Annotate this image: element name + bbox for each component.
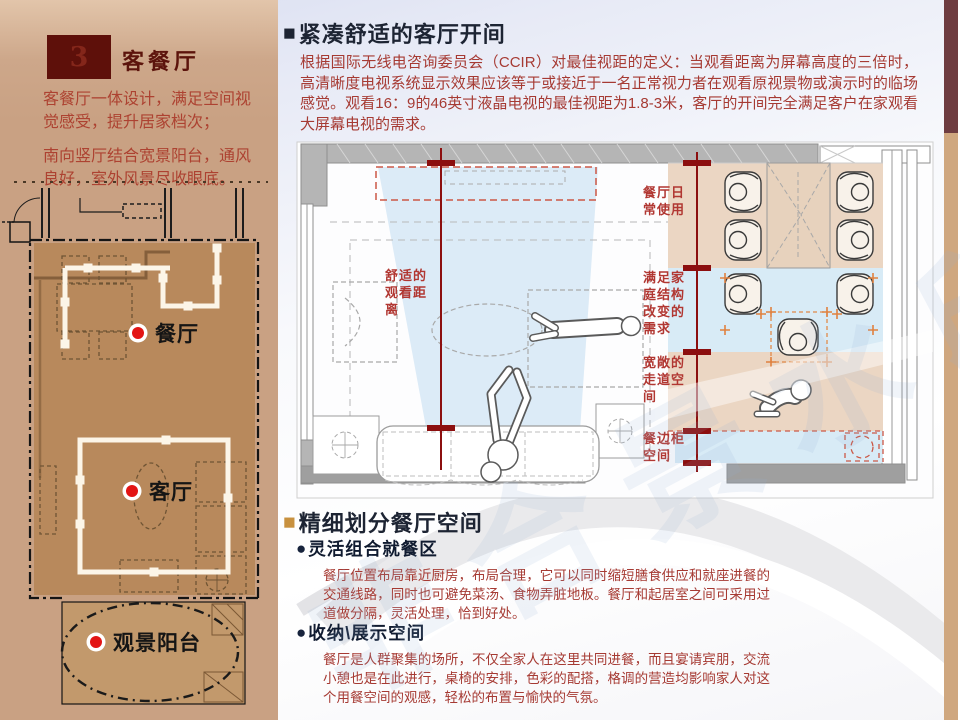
band2-label-line: 满足家	[643, 270, 685, 285]
plan-label-dining: 餐厅	[129, 322, 200, 346]
bullet-flexible-dining: ● 灵活组合就餐区	[296, 536, 438, 561]
round-bullet-icon: ●	[296, 624, 306, 641]
bullet2-body: 餐厅是人群聚集的场所，不仅全家人在这里共同进餐，而且宴请宾朋，交流小憩也是在此进…	[323, 650, 770, 707]
living-section-heading: ■ 紧凑舒适的客厅开间	[283, 17, 506, 49]
band3-label-line: 间	[643, 389, 657, 404]
plan-upper-walls	[2, 182, 268, 242]
section-number: 3	[70, 42, 89, 73]
right-bar-maroon	[944, 0, 958, 133]
plan-label-living-text: 客厅	[149, 480, 193, 504]
square-bullet-icon: ■	[283, 512, 296, 533]
band4-label-line: 空间	[643, 448, 671, 463]
layout-diagram: 舒适的 观看距 离 餐厅日 常使用 满足家 庭结构 改变的 需求 宽敞的 走道空…	[295, 140, 940, 502]
band3-label-line: 走道空	[643, 372, 685, 387]
band3-label-line: 宽敞的	[642, 355, 685, 370]
band1-label-line: 常使用	[643, 202, 685, 217]
living-section-body: 根据国际无线电咨询委员会（CCIR）对最佳视距的定义：当观看距离为屏幕高度的三倍…	[300, 53, 918, 135]
dining-section-heading: ■ 精细划分餐厅空间	[283, 506, 483, 538]
band2-label-line: 改变的	[643, 304, 685, 319]
bullet1-label: 灵活组合就餐区	[308, 536, 438, 561]
round-bullet-icon: ●	[296, 540, 306, 557]
section-number-box: 3	[47, 35, 111, 79]
plan-label-dining-text: 餐厅	[155, 322, 199, 346]
bullet1-body: 餐厅位置布局靠近厨房，布局合理，它可以同时缩短膳食供应和就座进餐的交通线路，同时…	[323, 566, 770, 623]
square-bullet-icon: ■	[283, 23, 296, 44]
section-title: 客餐厅	[122, 44, 200, 76]
bullet2-label: 收纳\展示空间	[308, 620, 425, 645]
floor-plan: 餐厅 客厅 观景阳台	[0, 178, 278, 720]
note-1: 客餐厅一体设计，满足空间视觉感受，提升居家档次；	[43, 88, 261, 134]
dining-heading-text: 精细划分餐厅空间	[299, 506, 483, 538]
red-dot-icon	[126, 485, 138, 497]
living-heading-text: 紧凑舒适的客厅开间	[299, 17, 506, 49]
band1-label-line: 餐厅日	[642, 185, 685, 200]
dining-table	[767, 163, 830, 268]
viewing-label-line: 观看距	[385, 285, 427, 300]
band2-label-line: 需求	[643, 321, 671, 336]
bullet-storage-display: ● 收纳\展示空间	[296, 620, 425, 645]
band2-label-line: 庭结构	[643, 287, 685, 302]
slide: 3 客餐厅 客餐厅一体设计，满足空间视觉感受，提升居家档次； 南向竖厅结合宽景阳…	[0, 0, 960, 720]
viewing-label-line: 舒适的	[385, 268, 427, 283]
plan-label-living: 客厅	[123, 480, 194, 504]
plan-label-balcony-text: 观景阳台	[113, 631, 201, 655]
viewing-label-line: 离	[385, 302, 399, 317]
red-dot-icon	[90, 636, 102, 648]
red-dot-icon	[132, 327, 144, 339]
right-bar-tan	[944, 133, 958, 720]
band4-label-line: 餐边柜	[642, 431, 685, 446]
